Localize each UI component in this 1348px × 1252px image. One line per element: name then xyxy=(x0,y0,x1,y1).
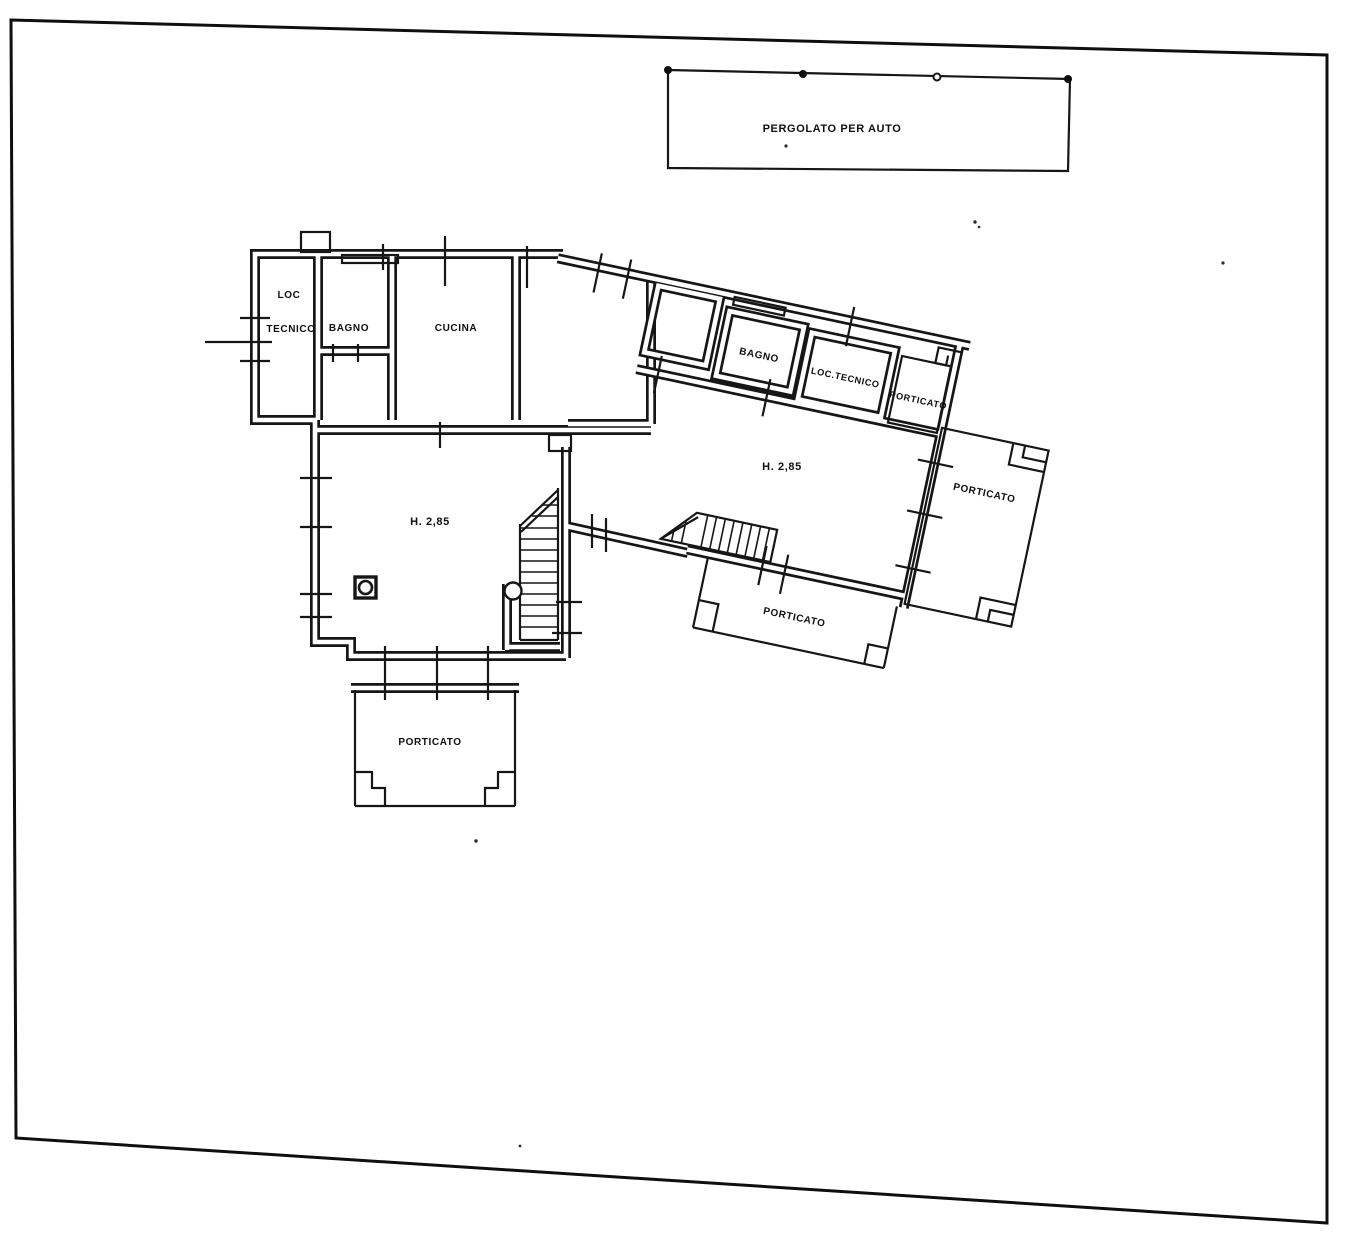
stairs-left xyxy=(505,488,559,640)
scanned-floor-plan-page: PERGOLATO PER AUTO xyxy=(0,0,1348,1252)
porch-pillar-steps xyxy=(976,443,1049,627)
left-wing-walls xyxy=(255,232,688,688)
scan-specks xyxy=(474,220,1224,1147)
pergolato-post-icon xyxy=(799,70,807,78)
label-porticato-end: PORTICATO xyxy=(888,389,947,411)
label-loc-tecnico-right: LOC.TECNICO xyxy=(810,366,880,390)
pergolato-post-icon xyxy=(664,66,672,74)
pier-circle-icon xyxy=(359,581,372,594)
label-height-living-right: H. 2,85 xyxy=(762,461,802,473)
label-loc-tecnico-left-1: LOC xyxy=(278,290,301,301)
window-ticks-left xyxy=(205,236,606,700)
pergolato-post-icon xyxy=(934,74,941,81)
label-height-living-left: H. 2,85 xyxy=(410,516,450,528)
porch-right xyxy=(905,428,1049,627)
porch-pillar-steps xyxy=(355,772,515,806)
label-porticato-right: PORTICATO xyxy=(952,482,1016,506)
scan-speck xyxy=(784,144,787,147)
living-room-pier xyxy=(355,577,376,598)
label-cucina: CUCINA xyxy=(435,323,478,334)
stair-column-icon xyxy=(505,583,522,600)
label-porticato-bottom-center: PORTICATO xyxy=(762,606,826,630)
sheet-border xyxy=(11,20,1327,1223)
pergolato-post-icon xyxy=(1064,75,1072,83)
label-bagno-left: BAGNO xyxy=(329,323,369,334)
pergolato-per-auto: PERGOLATO PER AUTO xyxy=(664,66,1072,171)
stair-cut-line xyxy=(520,490,558,532)
label-bagno-right: BAGNO xyxy=(738,346,780,365)
pergolato-label: PERGOLATO PER AUTO xyxy=(763,123,902,135)
stair-treads xyxy=(520,505,558,627)
label-loc-tecnico-left-2: TECNICO xyxy=(266,324,315,335)
pergolato-outline xyxy=(668,70,1070,171)
porch-bottom-left xyxy=(355,690,515,806)
label-porticato-bottom-left: PORTICATO xyxy=(398,737,461,748)
floor-plan-drawing: PERGOLATO PER AUTO xyxy=(0,0,1348,1252)
